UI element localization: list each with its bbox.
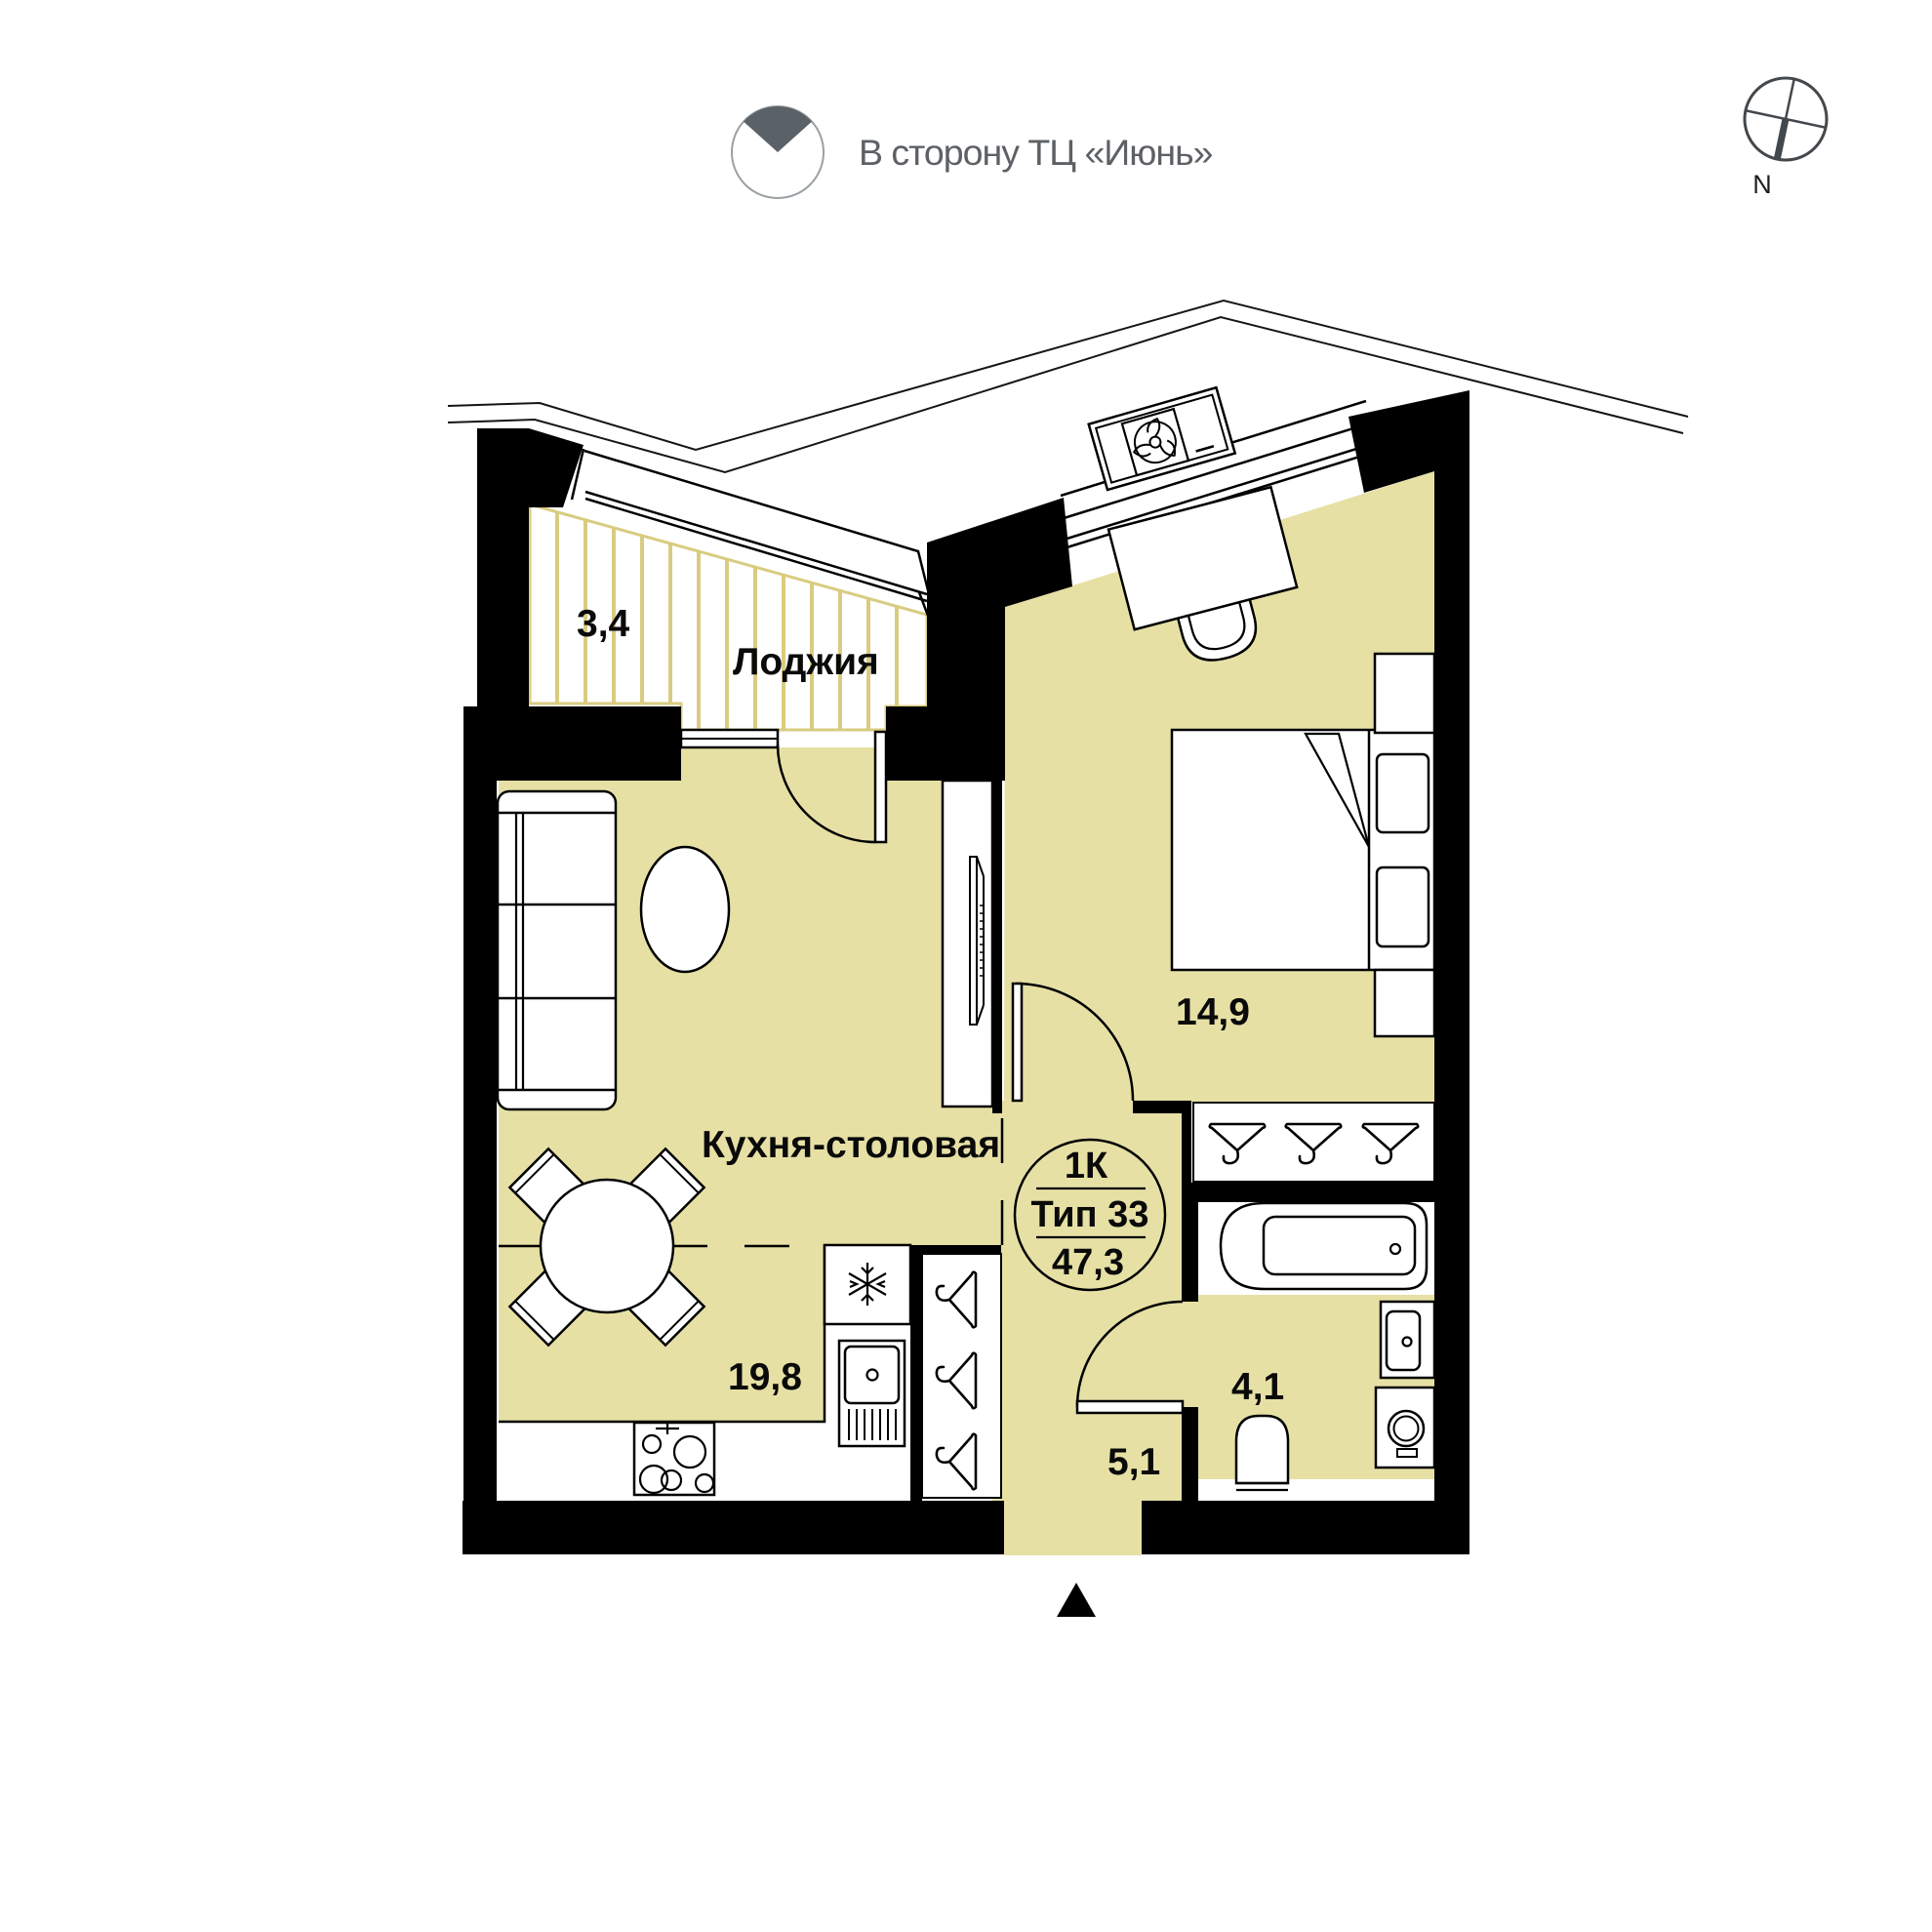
svg-text:N: N <box>1752 170 1772 199</box>
svg-text:Тип 33: Тип 33 <box>1031 1194 1149 1235</box>
svg-text:47,3: 47,3 <box>1052 1242 1124 1283</box>
svg-text:1К: 1К <box>1065 1146 1108 1187</box>
svg-text:14,9: 14,9 <box>1176 991 1250 1033</box>
svg-text:3,4: 3,4 <box>577 603 630 645</box>
svg-text:Кухня-столовая: Кухня-столовая <box>702 1124 1000 1166</box>
svg-text:5,1: 5,1 <box>1107 1441 1160 1483</box>
svg-text:В сторону ТЦ «Июнь»: В сторону ТЦ «Июнь» <box>859 132 1213 173</box>
svg-text:19,8: 19,8 <box>728 1356 802 1398</box>
svg-text:Лоджия: Лоджия <box>733 641 879 683</box>
svg-text:4,1: 4,1 <box>1231 1366 1284 1408</box>
